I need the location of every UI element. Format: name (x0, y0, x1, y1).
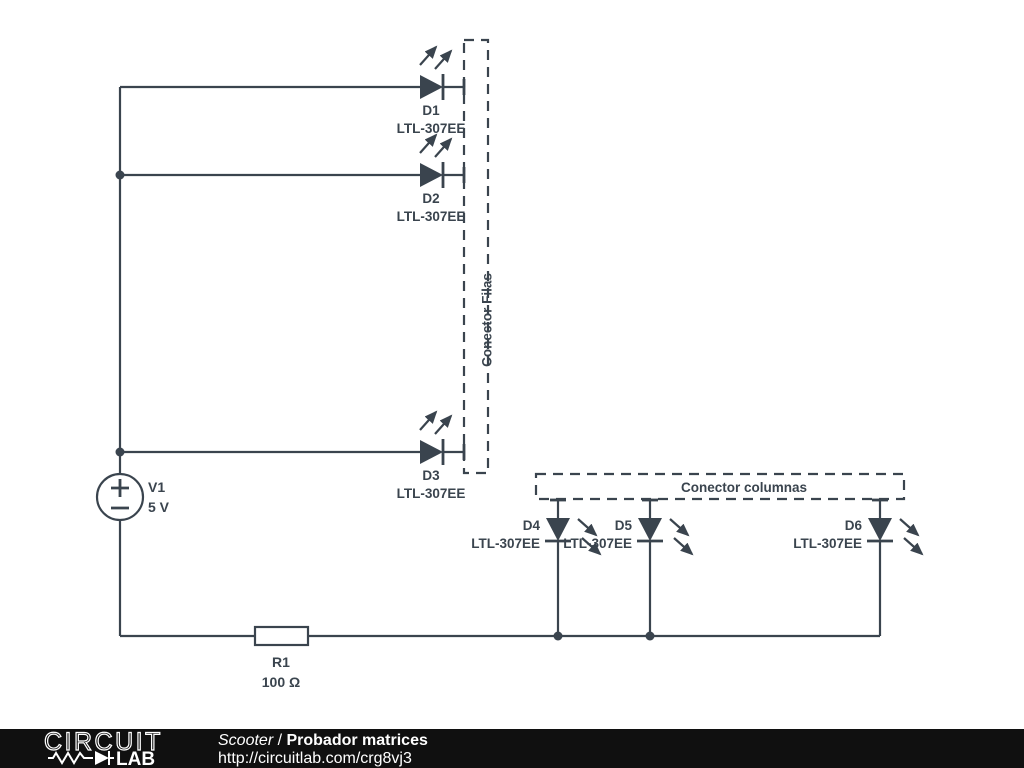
logo-word-lab: LAB (116, 749, 155, 768)
junction-dot (116, 171, 125, 180)
d5-part-label: LTL-307EE (563, 536, 632, 551)
d6-light-arrow (904, 538, 922, 554)
d2-part-label: LTL-307EE (397, 209, 466, 224)
junction-dot (646, 632, 655, 641)
d1-name-label: D1 (422, 103, 440, 118)
voltage-source-v1[interactable]: V1 5 V (97, 474, 170, 520)
d2-light-arrow (420, 135, 436, 153)
connector-rows-box[interactable]: Conector Filas (464, 40, 495, 473)
schematic-title: Probador matrices (286, 732, 427, 749)
d1-light-arrow (435, 51, 451, 69)
d6-anode-triangle (868, 518, 892, 541)
d1-anode-triangle (420, 75, 443, 99)
d3-part-label: LTL-307EE (397, 486, 466, 501)
wires (116, 79, 889, 641)
d5-anode-triangle (638, 518, 662, 541)
d3-light-arrow (435, 416, 451, 434)
footer-credit: Scooter / Probador matrices http://circu… (218, 732, 428, 768)
footer-bar: CIRCUIT LAB Scooter / Probador matrices … (0, 729, 1024, 768)
schematic-url: http://circuitlab.com/crg8vj3 (218, 750, 428, 768)
junction-dot (554, 632, 563, 641)
d3-name-label: D3 (422, 468, 440, 483)
connector-columns-label: Conector columnas (681, 480, 807, 495)
d5-light-arrow (674, 538, 692, 554)
led-d1[interactable]: D1 LTL-307EE (397, 47, 466, 136)
d2-anode-triangle (420, 163, 443, 187)
d3-anode-triangle (420, 440, 443, 464)
d1-light-arrow (420, 47, 436, 65)
d4-name-label: D4 (523, 518, 541, 533)
r1-body (255, 627, 308, 645)
d4-light-arrow (578, 519, 596, 535)
d2-name-label: D2 (422, 191, 439, 206)
connector-rows-label: Conector Filas (480, 273, 495, 367)
d2-light-arrow (435, 139, 451, 157)
d3-light-arrow (420, 412, 436, 430)
v1-name-label: V1 (148, 479, 165, 495)
author-name: Scooter (218, 732, 273, 749)
r1-value-label: 100 Ω (262, 674, 300, 690)
connector-rows-outline (464, 40, 488, 473)
d1-part-label: LTL-307EE (397, 121, 466, 136)
credit-line1: Scooter / Probador matrices (218, 732, 428, 750)
circuitlab-schematic-page: Conector Filas Conector columnas D1 LTL-… (0, 0, 1024, 768)
d5-light-arrow (670, 519, 688, 535)
led-d3[interactable]: D3 LTL-307EE (397, 412, 466, 501)
r1-name-label: R1 (272, 654, 290, 670)
d5-name-label: D5 (615, 518, 633, 533)
d6-light-arrow (900, 519, 918, 535)
v1-value-label: 5 V (148, 499, 170, 515)
connector-columns-box[interactable]: Conector columnas (536, 474, 904, 499)
circuitlab-logo: CIRCUIT LAB (0, 729, 210, 768)
led-d2[interactable]: D2 LTL-307EE (397, 135, 466, 224)
d6-part-label: LTL-307EE (793, 536, 862, 551)
junction-dot (116, 448, 125, 457)
resistor-r1[interactable]: R1 100 Ω (255, 627, 308, 690)
d6-name-label: D6 (845, 518, 863, 533)
led-d6[interactable]: D6 LTL-307EE (793, 518, 922, 554)
d4-part-label: LTL-307EE (471, 536, 540, 551)
credit-separator: / (273, 732, 286, 749)
schematic-canvas: Conector Filas Conector columnas D1 LTL-… (0, 0, 1024, 729)
